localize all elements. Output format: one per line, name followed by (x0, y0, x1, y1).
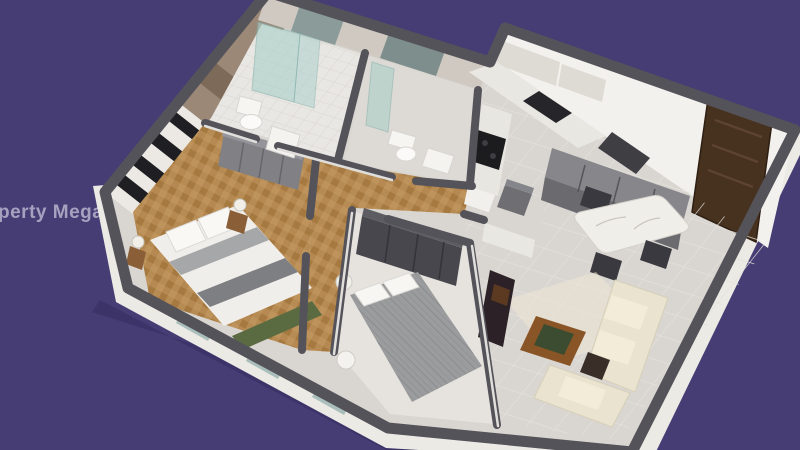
wall-bath2-south (416, 181, 472, 186)
shower-glass (252, 22, 300, 102)
toilet (396, 147, 416, 161)
floor-ball-lamp (337, 351, 355, 369)
bedside-lamp (234, 199, 246, 211)
floorplan-screenshot: perty Megamart (0, 0, 800, 450)
bedside-lamp (132, 236, 144, 248)
burner (482, 140, 488, 146)
wall-mbr-east-b (302, 256, 306, 350)
toilet (240, 115, 262, 130)
burner (490, 153, 496, 159)
floorplan-render: perty Megamart (0, 0, 800, 450)
